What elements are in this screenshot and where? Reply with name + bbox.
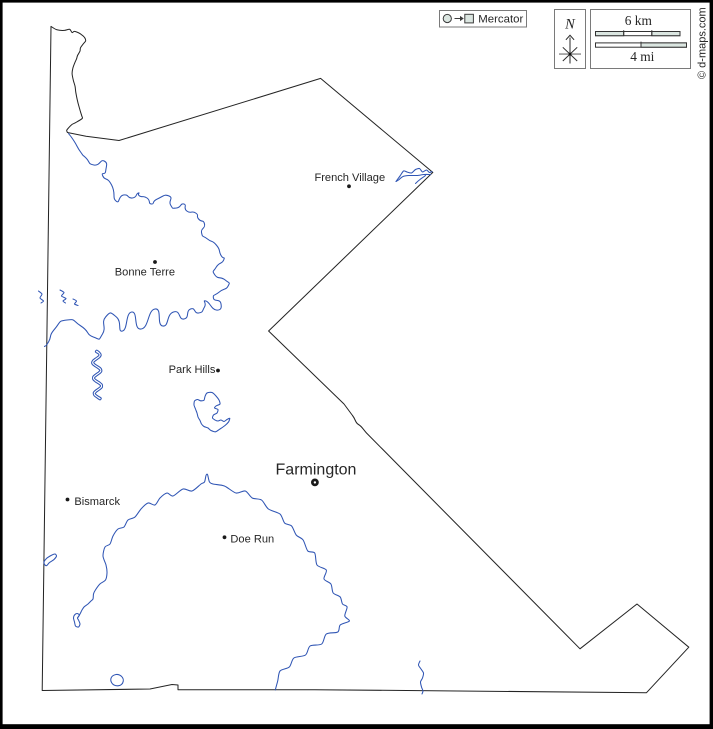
svg-text:Park Hills: Park Hills [169, 364, 216, 376]
svg-text:Farmington: Farmington [276, 461, 357, 478]
svg-text:© d-maps.com: © d-maps.com [697, 7, 709, 79]
svg-text:Mercator: Mercator [478, 13, 523, 25]
svg-text:4 mi: 4 mi [630, 49, 654, 64]
svg-text:Bismarck: Bismarck [74, 496, 120, 508]
svg-text:Bonne Terre: Bonne Terre [115, 267, 175, 279]
svg-text:6 km: 6 km [625, 13, 653, 28]
svg-text:N: N [564, 17, 576, 33]
svg-text:French Village: French Village [314, 172, 385, 184]
svg-text:Doe Run: Doe Run [230, 533, 274, 545]
